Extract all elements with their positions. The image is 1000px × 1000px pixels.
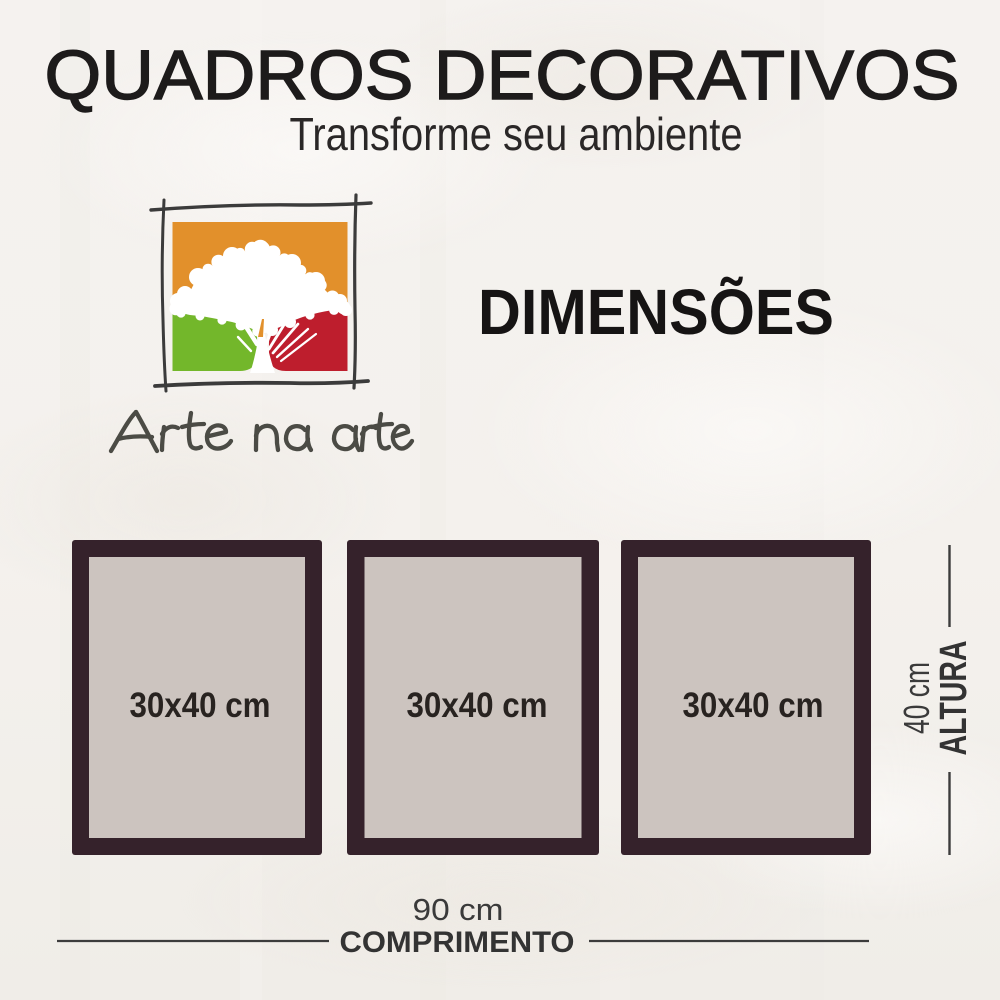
svg-text:90 cm: 90 cm [413, 892, 504, 927]
svg-text:40 cm: 40 cm [896, 662, 937, 734]
svg-text:30x40 cm: 30x40 cm [683, 686, 824, 725]
svg-text:30x40 cm: 30x40 cm [130, 686, 271, 725]
svg-text:QUADROS DECORATIVOS: QUADROS DECORATIVOS [45, 36, 960, 114]
svg-text:DIMENSÕES: DIMENSÕES [478, 276, 834, 348]
svg-text:COMPRIMENTO: COMPRIMENTO [340, 926, 575, 959]
svg-text:ALTURA: ALTURA [933, 641, 975, 756]
svg-text:30x40 cm: 30x40 cm [407, 686, 548, 725]
svg-text:Transforme seu ambiente: Transforme seu ambiente [290, 108, 743, 160]
